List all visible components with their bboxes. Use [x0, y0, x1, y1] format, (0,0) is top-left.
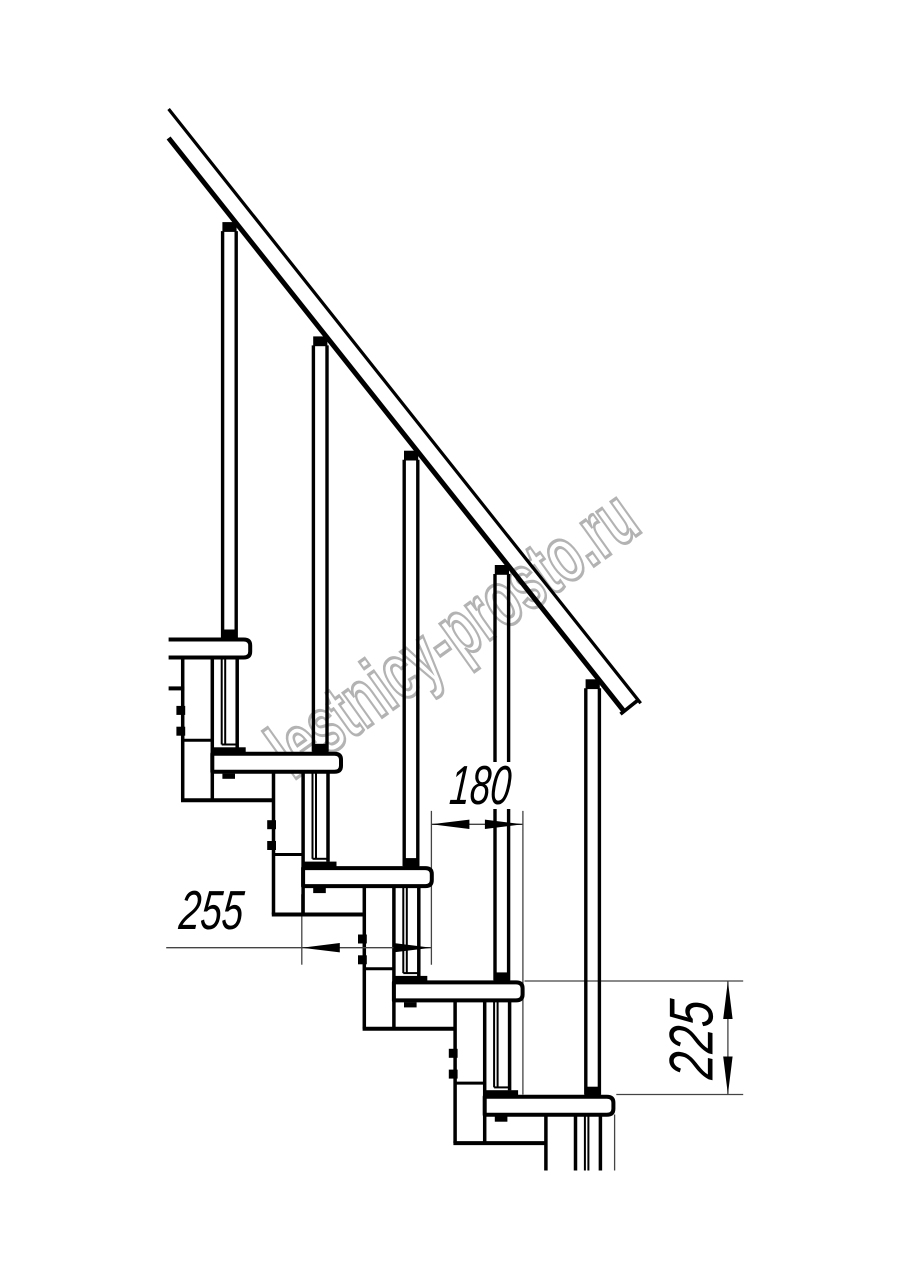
svg-text:255: 255 — [176, 879, 246, 941]
svg-text:225: 225 — [658, 997, 727, 1082]
svg-text:180: 180 — [447, 754, 514, 816]
